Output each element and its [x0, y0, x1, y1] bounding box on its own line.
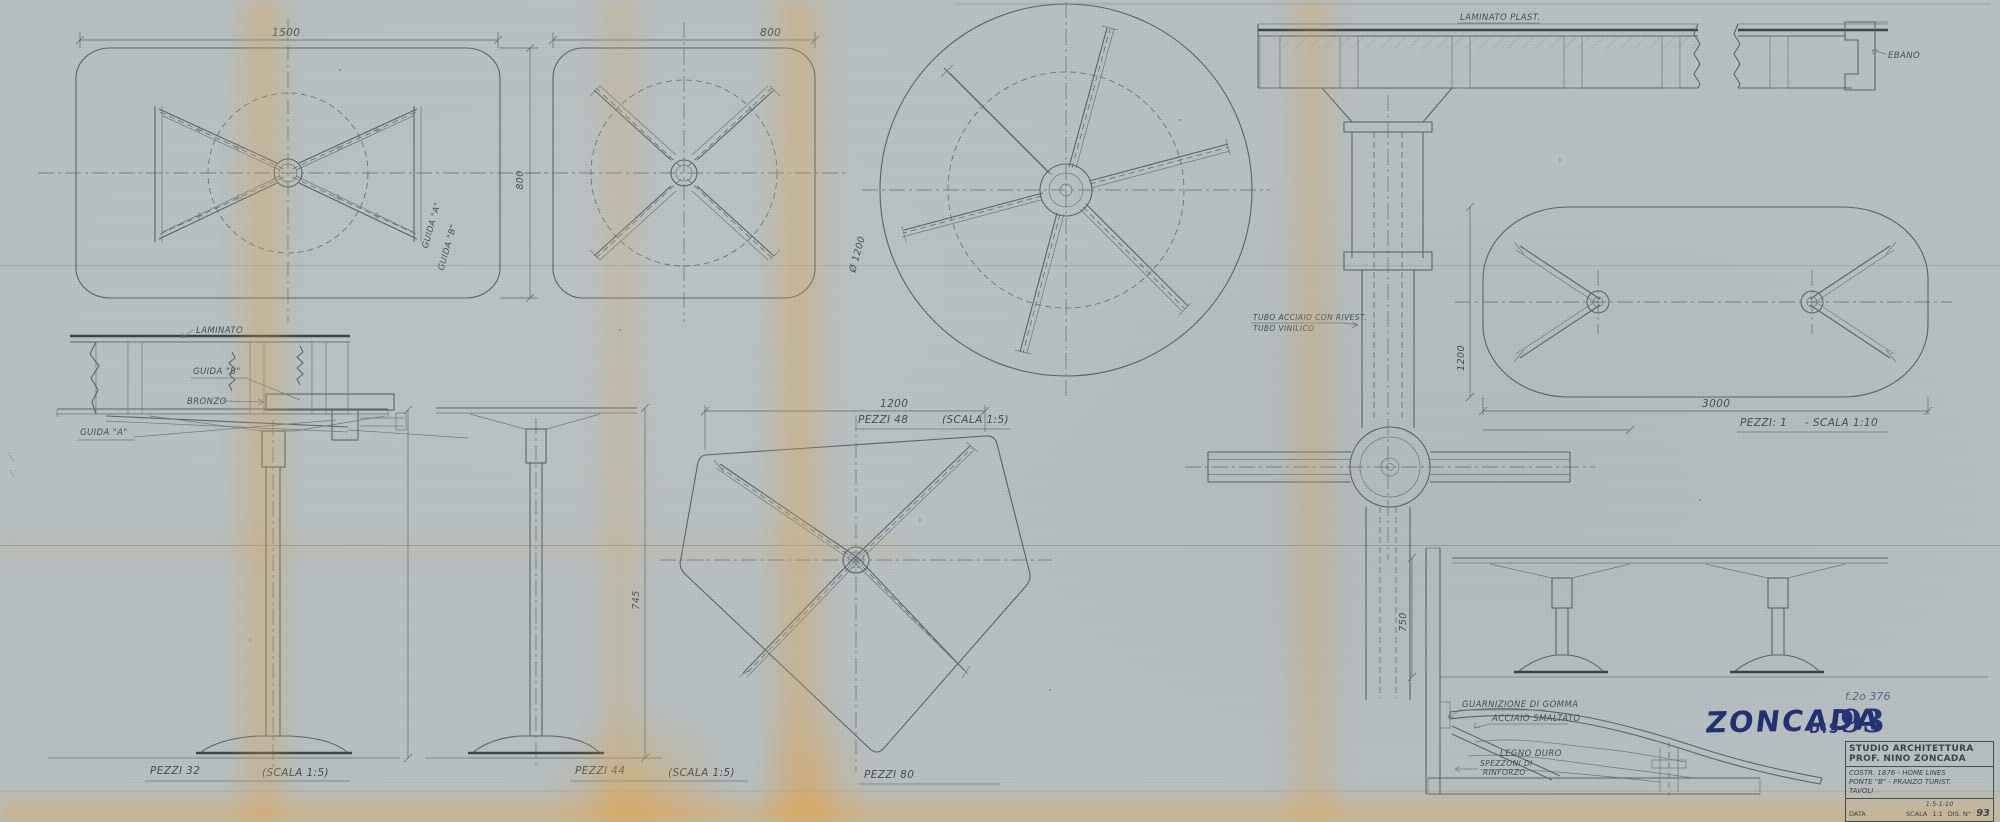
elev-small-scala-label: (SCALA 1:5) — [262, 767, 329, 779]
drawing-canvas: 1500 800 GUIDA "A" GUIDA "B" — [0, 0, 2000, 822]
guarnizione-label: GUARNIZIONE DI GOMMA — [1462, 700, 1578, 710]
elevation-small-table: PEZZI 32 (SCALA 1:5) — [48, 406, 412, 781]
title-block-project-line2: PONTE "B" - PRANZO TURIST. — [1849, 778, 1990, 787]
title-block-scala-unit: 1:1 — [1932, 810, 1942, 818]
guida-a-label: GUIDA "A" — [80, 428, 128, 438]
acciaio-label: ACCIAIO SMALTATO — [1491, 714, 1581, 724]
tabletop-cross-section: EBANO LAMINATO PLAST. — [955, 4, 1990, 132]
rect-table-guida-b-label: GUIDA "B" — [437, 223, 460, 272]
oval-table-width-dim: 1200 — [1456, 345, 1467, 371]
round-table-scala-label: (SCALA 1:5) — [942, 414, 1009, 426]
spezzoni-label-line1: SPEZZONI DI — [1480, 759, 1533, 768]
title-block-project: COSTR. 1876 - HOME LINES PONTE "B" - PRA… — [1846, 767, 1993, 799]
rect-table-plan: 1500 800 GUIDA "A" GUIDA "B" — [38, 18, 545, 322]
tubo-vinilico-label: TUBO VINILICO — [1253, 324, 1314, 333]
title-block-project-line1: COSTR. 1876 - HOME LINES — [1849, 769, 1990, 778]
elev-medium-scala-label: (SCALA 1:5) — [668, 767, 735, 779]
title-block-dis-label: DIS. N° — [1948, 810, 1971, 818]
oval-table-pezzi-label: PEZZI: 1 — [1740, 417, 1787, 429]
oval-table-scala-label: - SCALA 1:10 — [1805, 417, 1878, 429]
legno-duro-label: LEGNO DURO — [1500, 749, 1562, 759]
elev-medium-pezzi-label: PEZZI 44 — [575, 765, 625, 777]
square-table-plan: 800 — [525, 22, 845, 322]
elevation-medium-table: 745 PEZZI 44 (SCALA 1:5) — [425, 404, 748, 781]
bronzo-label: BRONZO — [187, 397, 227, 407]
hub-plan-detail — [1185, 427, 1595, 700]
dis-stamp-label: DIS — [1809, 722, 1840, 737]
title-block-data-label: DATA — [1849, 810, 1866, 818]
title-block-project-line3: TAVOLI — [1849, 787, 1990, 796]
pentagon-table-plan: 1200 PEZZI 80 — [660, 398, 1052, 784]
round-table-plan: Ø 1200 PEZZI 48 (SCALA 1:5) — [847, 2, 1270, 429]
tubo-acciaio-label: TUBO ACCIAIO CON RIVEST. — [1253, 313, 1367, 322]
oval-table-length-dim: 3000 — [1702, 398, 1730, 410]
laminato-label: LAMINATO — [196, 326, 243, 336]
title-block-studio-line1: STUDIO ARCHITETTURA — [1846, 742, 1993, 754]
title-block-footer: 1:5-1:10 DATA SCALA 1:1 DIS. N° 93 — [1846, 799, 1993, 821]
round-table-pezzi-label: PEZZI 48 — [858, 414, 908, 426]
elev-small-pezzi-label: PEZZI 32 — [150, 765, 200, 777]
square-table-width-dim: 800 — [760, 27, 781, 39]
drawing-sheet: 1500 800 GUIDA "A" GUIDA "B" — [0, 0, 2000, 822]
spezzoni-label-line2: RINFORZO — [1483, 768, 1526, 777]
rect-table-width-dim: 800 — [515, 170, 526, 189]
title-block-dis-number: 93 — [1976, 808, 1990, 819]
elevation-long-table: 750 — [1398, 554, 1988, 681]
title-block: STUDIO ARCHITETTURA PROF. NINO ZONCADA C… — [1845, 741, 1994, 822]
oval-table-plan: 1200 3000 PEZZI: 1 - SCALA 1:10 — [1455, 203, 1952, 434]
pentagon-pezzi-label: PEZZI 80 — [864, 769, 914, 781]
title-block-studio-line2: PROF. NINO ZONCADA — [1846, 754, 1993, 767]
title-block-scala-label: SCALA — [1906, 810, 1927, 818]
elev-long-height-dim: 750 — [1398, 612, 1409, 631]
title-block-scala-range: 1:5-1:10 — [1889, 800, 1990, 808]
elev-medium-height-dim: 745 — [631, 590, 642, 609]
ebano-label: EBANO — [1888, 51, 1920, 61]
guida-b-label: GUIDA "B" — [193, 367, 241, 377]
rect-table-length-dim: 1500 — [272, 27, 300, 39]
pentagon-width-dim: 1200 — [880, 398, 908, 410]
rect-table-guida-a-label: GUIDA "A" — [421, 201, 444, 250]
pencil-note: f.2o 376 — [1845, 690, 1890, 703]
round-table-diameter-dim: Ø 1200 — [847, 235, 867, 275]
pedestal-column-section: TUBO ACCIAIO CON RIVEST. TUBO VINILICO — [1251, 95, 1432, 560]
laminato-plast-label: LAMINATO PLAST. — [1460, 13, 1541, 23]
screw-icon — [297, 346, 303, 385]
dis-stamp-number: 93 — [1840, 702, 1885, 740]
